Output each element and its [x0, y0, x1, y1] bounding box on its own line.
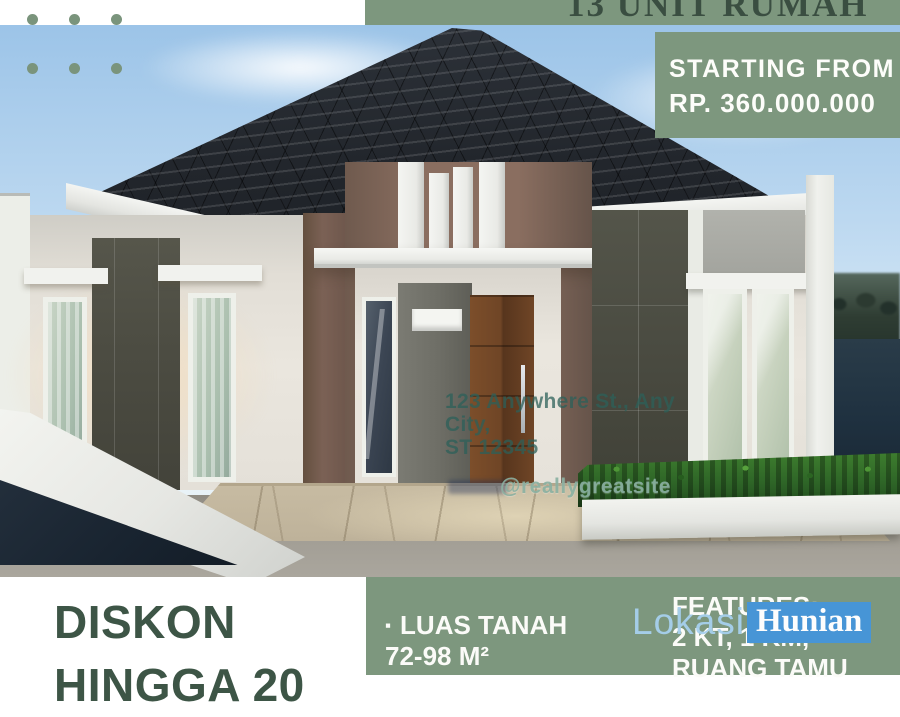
price-label: STARTING FROM: [669, 53, 900, 86]
discount-section: DISKON HINGGA 20: [0, 577, 366, 675]
background-ground: [824, 339, 900, 471]
facade-fin: [453, 167, 473, 250]
facade-fin: [479, 162, 505, 250]
land-info: ▪LUAS TANAH 72-98 M²: [385, 610, 567, 672]
dot-icon: [111, 14, 122, 25]
address-line2: ST 12345: [445, 436, 725, 459]
dot-icon: [27, 14, 38, 25]
window-ledge: [158, 265, 262, 281]
land-value: 72-98 M²: [385, 641, 567, 672]
dot-grid: [27, 14, 131, 76]
facade-fin: [429, 173, 449, 250]
brand-watermark: Lokasi Hunian: [632, 601, 871, 643]
dot-icon: [27, 63, 38, 74]
square-bullet-icon: ▪: [385, 616, 391, 635]
discount-line1: DISKON: [54, 591, 305, 654]
brand-name-second: Hunian: [747, 602, 871, 643]
window-ledge: [24, 268, 108, 284]
address-line1: 123 Anywhere St., Any City,: [445, 390, 725, 436]
brand-name-first: Lokasi: [632, 601, 745, 643]
dot-icon: [69, 14, 80, 25]
social-watermark: @reallygreatsite: [500, 475, 671, 499]
facade-fin: [398, 162, 424, 250]
features-line2: RUANG TAMU: [672, 653, 848, 684]
blurred-watermark: [448, 480, 508, 494]
planter-wall: [582, 494, 900, 540]
price-banner: STARTING FROM RP. 360.000.000: [655, 32, 900, 138]
land-label: LUAS TANAH: [400, 610, 567, 640]
dot-icon: [111, 63, 122, 74]
discount-line2: HINGGA 20: [54, 654, 305, 717]
dot-icon: [69, 63, 80, 74]
entry-canopy: [314, 248, 604, 268]
banner-title: 13 UNIT RUMAH: [567, 0, 868, 25]
land-label-line: ▪LUAS TANAH: [385, 610, 567, 641]
vent-slot: [412, 309, 462, 331]
top-title-band: 13 UNIT RUMAH: [365, 0, 900, 25]
entry-side-window: [362, 297, 396, 477]
price-value: RP. 360.000.000: [669, 86, 900, 120]
window: [188, 293, 236, 482]
address-watermark: 123 Anywhere St., Any City, ST 12345: [445, 390, 725, 459]
window-ledge: [686, 273, 816, 289]
discount-text: DISKON HINGGA 20: [54, 591, 305, 717]
